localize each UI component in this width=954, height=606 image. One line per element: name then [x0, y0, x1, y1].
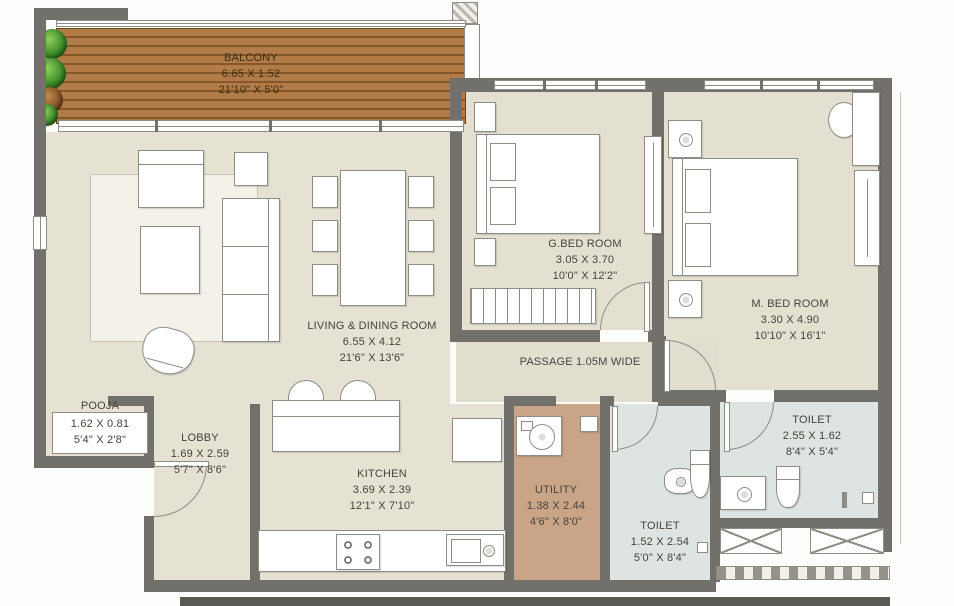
cooktop: [336, 534, 380, 570]
room-dim-metric: 6.65 X 1.52: [171, 66, 331, 82]
side-table: [234, 152, 268, 186]
room-name: LOBBY: [148, 430, 252, 446]
room-dim-imperial: 21'6" X 13'6": [292, 350, 452, 366]
coffee-table: [140, 226, 200, 294]
wall-outer-bottom: [144, 580, 716, 592]
room-dim-metric: 2.55 X 1.62: [756, 428, 868, 444]
toilet-common-door: [614, 406, 658, 450]
room-name: G.BED ROOM: [505, 236, 665, 252]
dining-chair: [408, 176, 434, 208]
room-name: KITCHEN: [302, 466, 462, 482]
dining-chair: [312, 220, 338, 252]
room-dim-metric: 1.38 X 2.44: [506, 498, 606, 514]
duct-shaft: [464, 24, 480, 82]
armchair: [138, 150, 204, 208]
room-dim-imperial: 10'0" X 12'2": [505, 268, 665, 284]
kitchen-sink: [446, 534, 504, 566]
ledge-xbox: [810, 528, 884, 554]
room-dim-metric: 6.55 X 4.12: [292, 334, 452, 350]
room-dim-imperial: 12'1" X 7'10": [302, 498, 462, 514]
dining-chair: [408, 264, 434, 296]
wall-mbed-bottom-right: [774, 390, 890, 402]
chajja-line: [900, 92, 901, 544]
room-dim-metric: 1.62 X 0.81: [53, 416, 147, 432]
room-name: UTILITY: [506, 482, 606, 498]
guest-bedroom-door: [600, 282, 648, 330]
floor-plan: BALCONY 6.65 X 1.52 21'10" X 5'0" LIVING…: [0, 0, 954, 606]
wc: [776, 466, 800, 508]
label-kitchen: KITCHEN 3.69 X 2.39 12'1" X 7'10": [302, 466, 462, 514]
label-balcony: BALCONY 6.65 X 1.52 21'10" X 5'0": [171, 50, 331, 98]
label-toilet-common: TOILET 1.52 X 2.54 5'0" X 8'4": [606, 518, 714, 566]
wall-pooja-bottom: [34, 456, 154, 468]
room-name: LIVING & DINING ROOM: [292, 318, 452, 334]
wall-toilet-top-stub: [606, 396, 614, 406]
shower-tap: [842, 492, 847, 508]
utility-fixture: [580, 416, 598, 432]
washing-machine: [516, 416, 562, 456]
label-guest-bedroom: G.BED ROOM 3.05 X 3.70 10'0" X 12'2": [505, 236, 665, 284]
room-dim-metric: 3.69 X 2.39: [302, 482, 462, 498]
dining-chair: [312, 264, 338, 296]
label-lobby: LOBBY 1.69 X 2.59 5'7" X 8'6": [148, 430, 252, 478]
wardrobe: [470, 288, 596, 324]
label-toilet-master: TOILET 2.55 X 1.62 8'4" X 5'4": [756, 412, 868, 460]
dining-chair: [408, 220, 434, 252]
wall-gbed-bottom: [450, 330, 600, 342]
label-pooja-dims: 1.62 X 0.81 5'4" X 2'8": [52, 412, 148, 454]
label-passage: PASSAGE 1.05M WIDE: [488, 354, 672, 370]
wall-utility-top: [514, 396, 556, 406]
nightstand: [668, 120, 702, 158]
label-utility: UTILITY 1.38 X 2.44 4'6" X 8'0": [506, 482, 606, 530]
vanity-counter: [720, 476, 766, 510]
room-dim-metric: 1.52 X 2.54: [606, 534, 714, 550]
room-dim-metric: 3.30 X 4.90: [710, 312, 870, 328]
ledge-hatch-strip: [716, 566, 890, 580]
master-bed: [672, 158, 798, 276]
label-living-dining: LIVING & DINING ROOM 6.55 X 4.12 21'6" X…: [292, 318, 452, 366]
wall-toilet-master-bottom: [710, 518, 892, 528]
dresser: [854, 170, 880, 266]
room-name: TOILET: [756, 412, 868, 428]
bedside-table: [474, 238, 496, 266]
refrigerator: [452, 418, 502, 462]
wall-balcony-top-left: [34, 8, 128, 20]
room-dim-imperial: 10'10" X 16'1": [710, 328, 870, 344]
balcony-sliding-window: [58, 120, 464, 132]
sofa: [222, 198, 280, 342]
floor-drain: [862, 492, 874, 504]
bedside-table: [474, 102, 496, 132]
room-dim-imperial: 5'4" X 2'8": [53, 432, 147, 448]
room-name: TOILET: [606, 518, 714, 534]
window-master-bedroom: [704, 80, 874, 90]
window-living: [33, 216, 47, 250]
ledge-xbox: [720, 528, 782, 554]
master-bedroom-door: [666, 340, 716, 390]
bottom-edge-band: [180, 597, 890, 606]
guest-bed: [476, 134, 600, 234]
dining-table: [340, 170, 406, 306]
balcony-railing: [56, 20, 466, 27]
wall-outer-right: [878, 78, 892, 552]
room-dim-imperial: 8'4" X 5'4": [756, 444, 868, 460]
wc: [690, 450, 710, 498]
dining-chair: [312, 176, 338, 208]
window-guest-bedroom: [494, 80, 646, 90]
breakfast-counter: [272, 400, 400, 452]
vanity-counter: [852, 92, 880, 166]
passage-text: PASSAGE 1.05M WIDE: [488, 354, 672, 370]
nightstand: [668, 280, 702, 318]
dresser: [644, 136, 662, 234]
label-master-bedroom: M. BED ROOM 3.30 X 4.90 10'10" X 16'1": [710, 296, 870, 344]
room-name: M. BED ROOM: [710, 296, 870, 312]
room-dim-imperial: 4'6" X 8'0": [506, 514, 606, 530]
room-dim-metric: 1.69 X 2.59: [148, 446, 252, 462]
room-dim-imperial: 21'10" X 5'0": [171, 82, 331, 98]
room-name: BALCONY: [171, 50, 331, 66]
room-dim-metric: 3.05 X 3.70: [505, 252, 665, 268]
room-dim-imperial: 5'7" X 8'6": [148, 462, 252, 478]
room-dim-imperial: 5'0" X 8'4": [606, 550, 714, 566]
